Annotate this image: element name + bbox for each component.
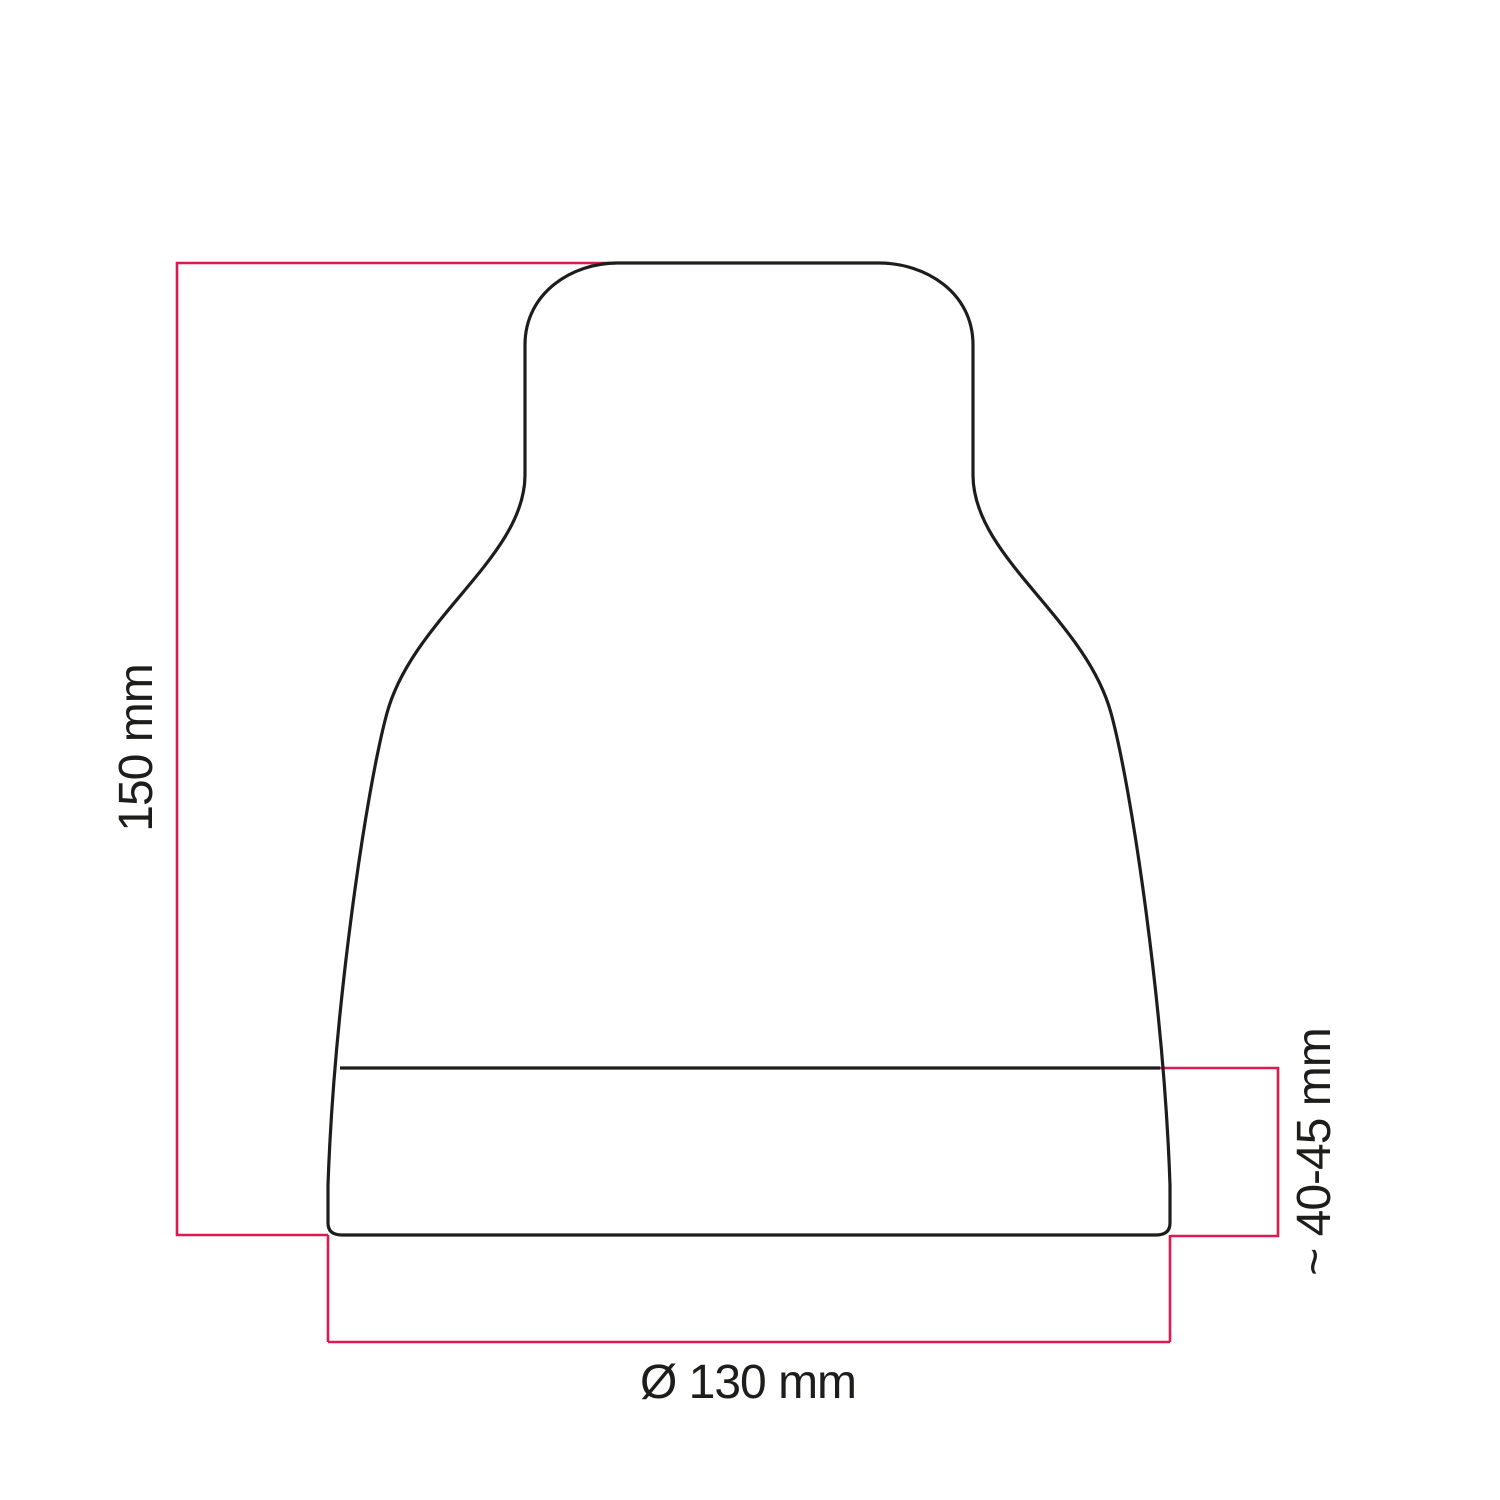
dimension-labels: 150 mm Ø 130 mm ~ 40-45 mm bbox=[110, 664, 1341, 1409]
technical-drawing: 150 mm Ø 130 mm ~ 40-45 mm bbox=[0, 0, 1500, 1500]
lampholder-outline bbox=[328, 263, 1170, 1235]
dimension-lines bbox=[177, 263, 1278, 1342]
diameter-dimension-line bbox=[328, 1235, 1170, 1342]
drawing-canvas: 150 mm Ø 130 mm ~ 40-45 mm bbox=[0, 0, 1500, 1500]
depth-dimension-line bbox=[1160, 1068, 1278, 1236]
product-silhouette bbox=[328, 263, 1170, 1235]
height-dimension-line bbox=[177, 263, 617, 1235]
depth-dimension-label: ~ 40-45 mm bbox=[1288, 1028, 1341, 1275]
diameter-dimension-label: Ø 130 mm bbox=[640, 1356, 856, 1409]
height-dimension-label: 150 mm bbox=[110, 664, 163, 831]
